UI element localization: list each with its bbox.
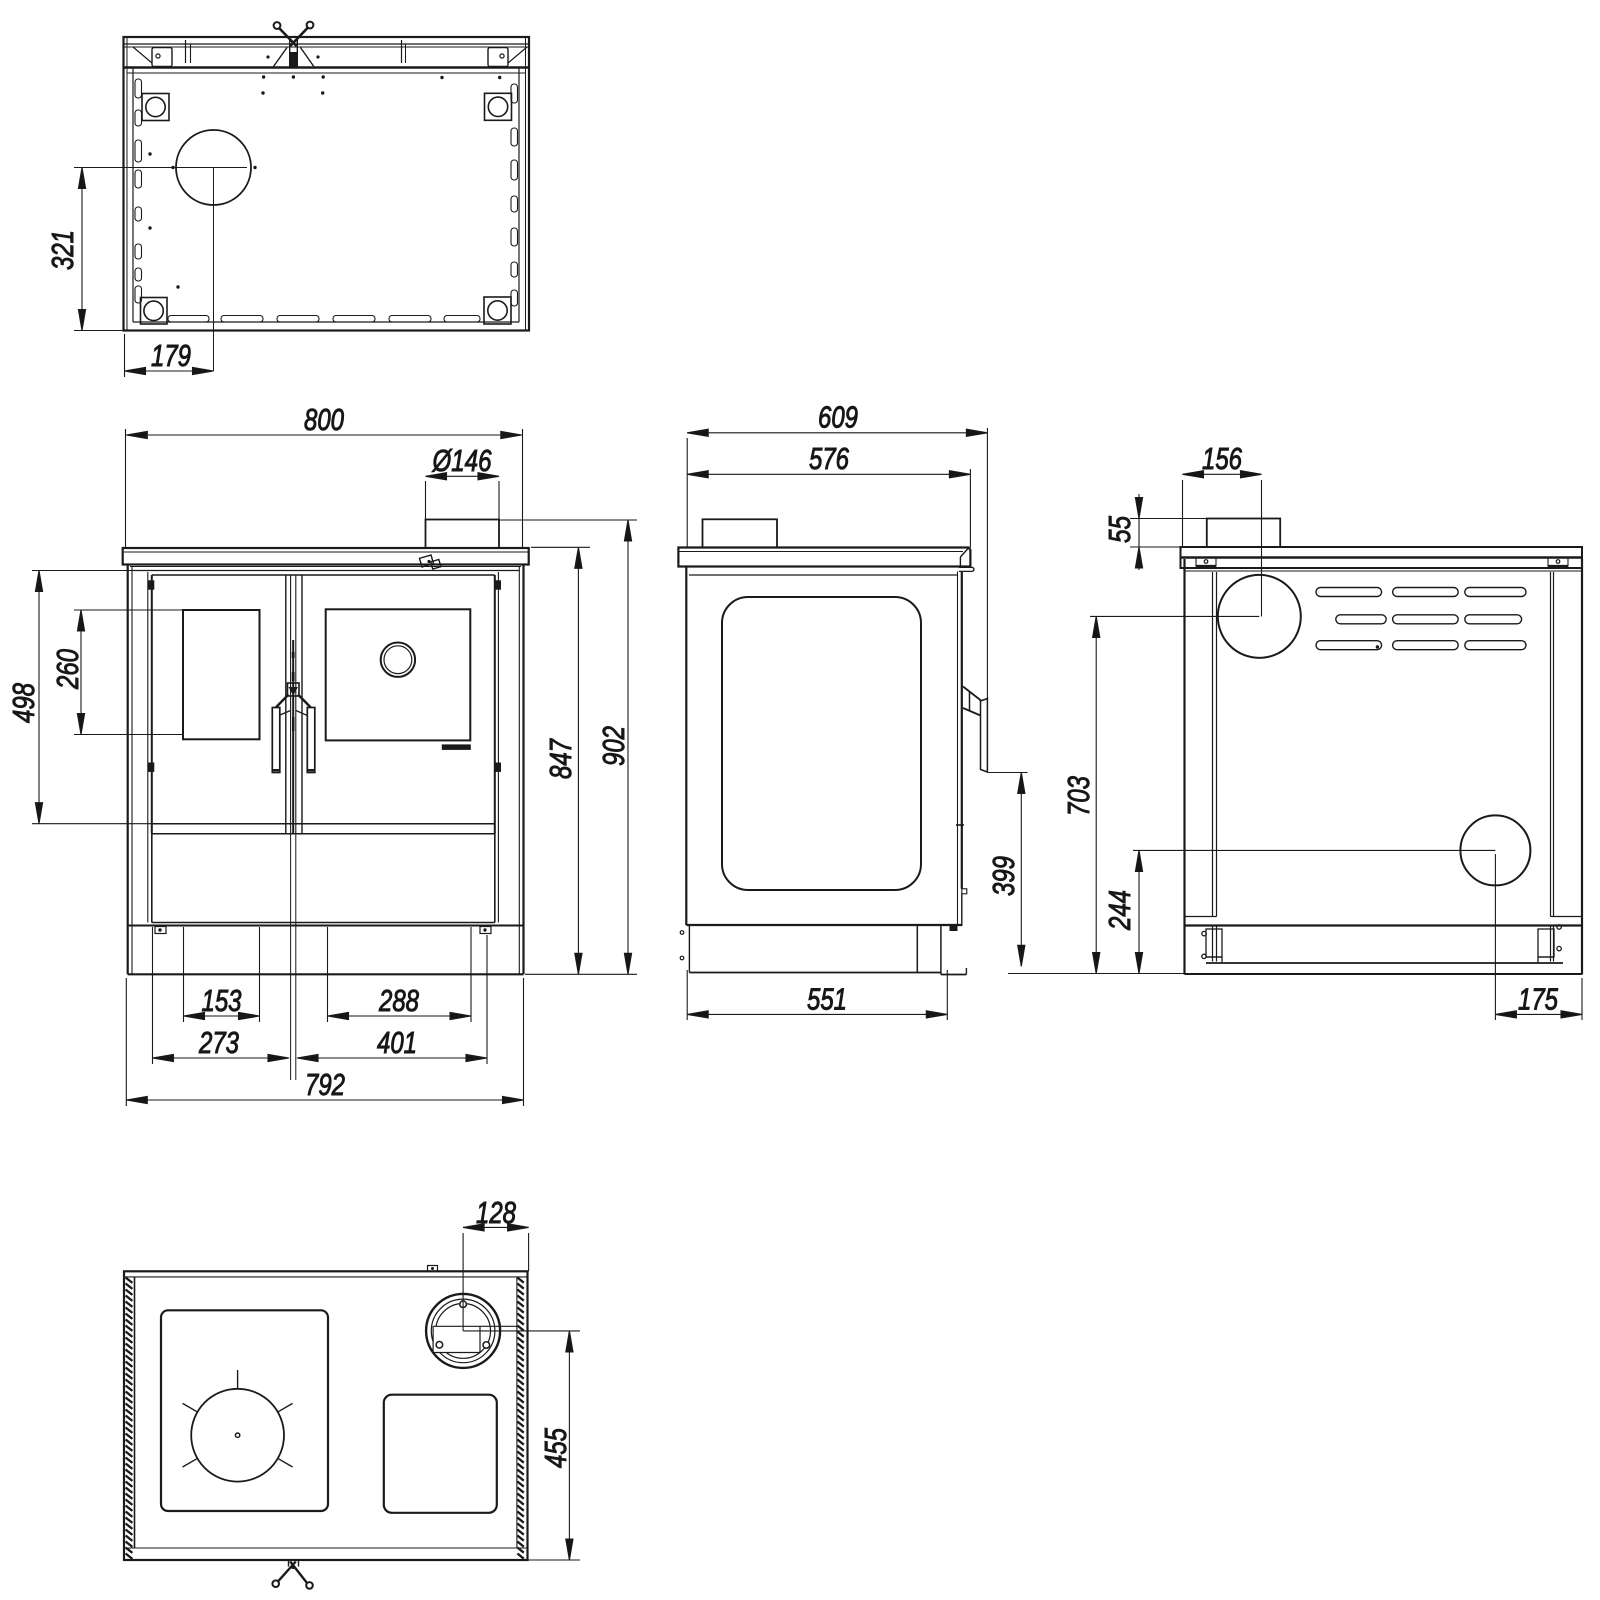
svg-text:156: 156 (1202, 441, 1243, 476)
svg-text:902: 902 (596, 726, 631, 766)
svg-text:576: 576 (809, 441, 850, 476)
svg-text:399: 399 (986, 856, 1021, 896)
svg-text:847: 847 (543, 738, 578, 779)
svg-text:703: 703 (1061, 776, 1096, 816)
svg-text:455: 455 (538, 1427, 573, 1468)
svg-text:401: 401 (377, 1025, 417, 1060)
svg-text:179: 179 (151, 338, 191, 373)
svg-text:153: 153 (202, 983, 242, 1018)
svg-text:128: 128 (476, 1195, 517, 1230)
svg-text:321: 321 (45, 230, 80, 270)
svg-text:Ø146: Ø146 (432, 443, 492, 478)
svg-text:800: 800 (304, 402, 344, 437)
svg-text:260: 260 (50, 649, 85, 690)
svg-text:175: 175 (1518, 982, 1559, 1017)
svg-text:273: 273 (198, 1025, 239, 1060)
svg-text:609: 609 (818, 400, 858, 435)
svg-text:288: 288 (378, 983, 419, 1018)
svg-text:498: 498 (6, 682, 41, 723)
svg-text:551: 551 (807, 982, 847, 1017)
svg-text:55: 55 (1102, 515, 1137, 543)
svg-text:792: 792 (305, 1067, 345, 1102)
svg-text:244: 244 (1102, 890, 1137, 931)
